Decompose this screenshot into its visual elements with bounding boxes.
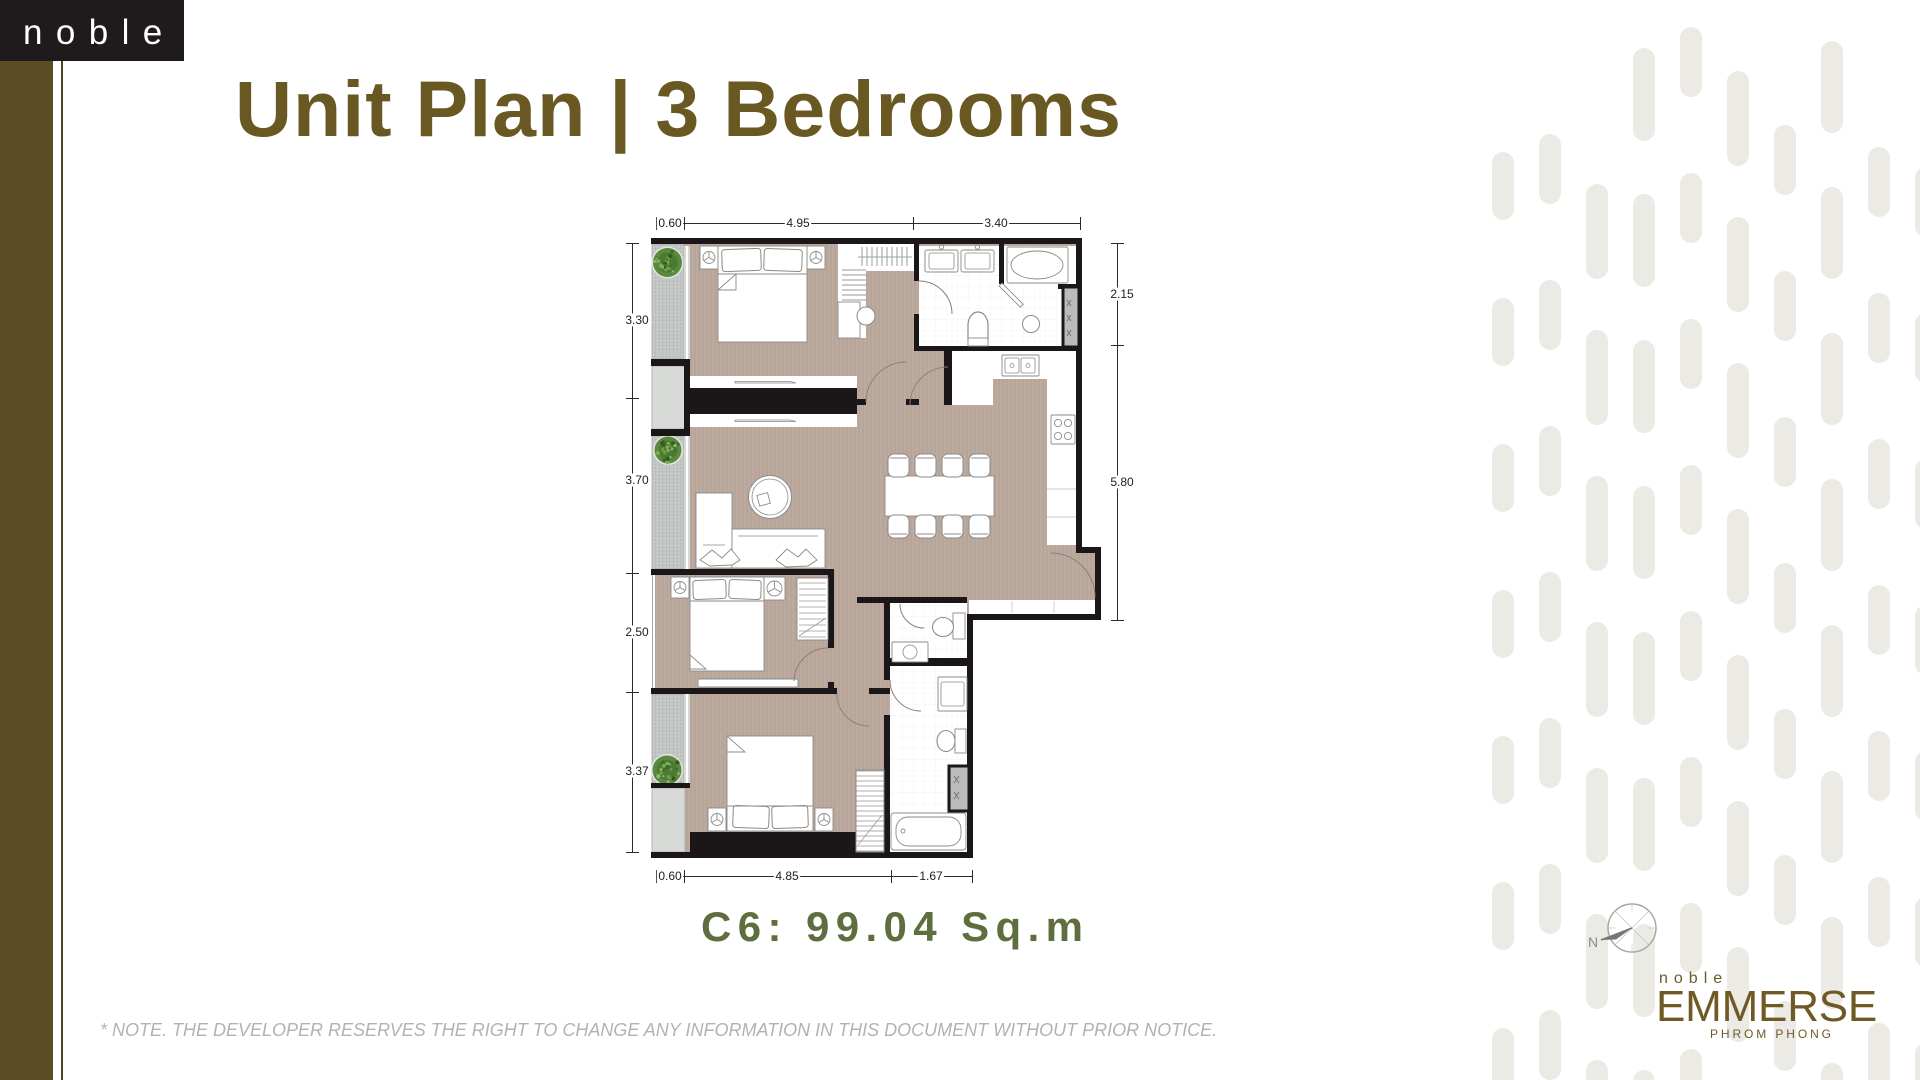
svg-text:3.37: 3.37 xyxy=(625,764,649,778)
svg-text:2.15: 2.15 xyxy=(1110,287,1134,301)
svg-text:3.70: 3.70 xyxy=(625,473,649,487)
svg-text:3.40: 3.40 xyxy=(984,216,1008,230)
svg-text:2.50: 2.50 xyxy=(625,625,649,639)
svg-text:3.30: 3.30 xyxy=(625,313,649,327)
svg-text:4.95: 4.95 xyxy=(786,216,810,230)
svg-text:N: N xyxy=(1588,934,1598,950)
svg-text:0.60: 0.60 xyxy=(658,216,682,230)
svg-text:0.60: 0.60 xyxy=(658,869,682,883)
svg-text:4.85: 4.85 xyxy=(775,869,799,883)
svg-text:5.80: 5.80 xyxy=(1110,475,1134,489)
svg-text:1.67: 1.67 xyxy=(919,869,943,883)
